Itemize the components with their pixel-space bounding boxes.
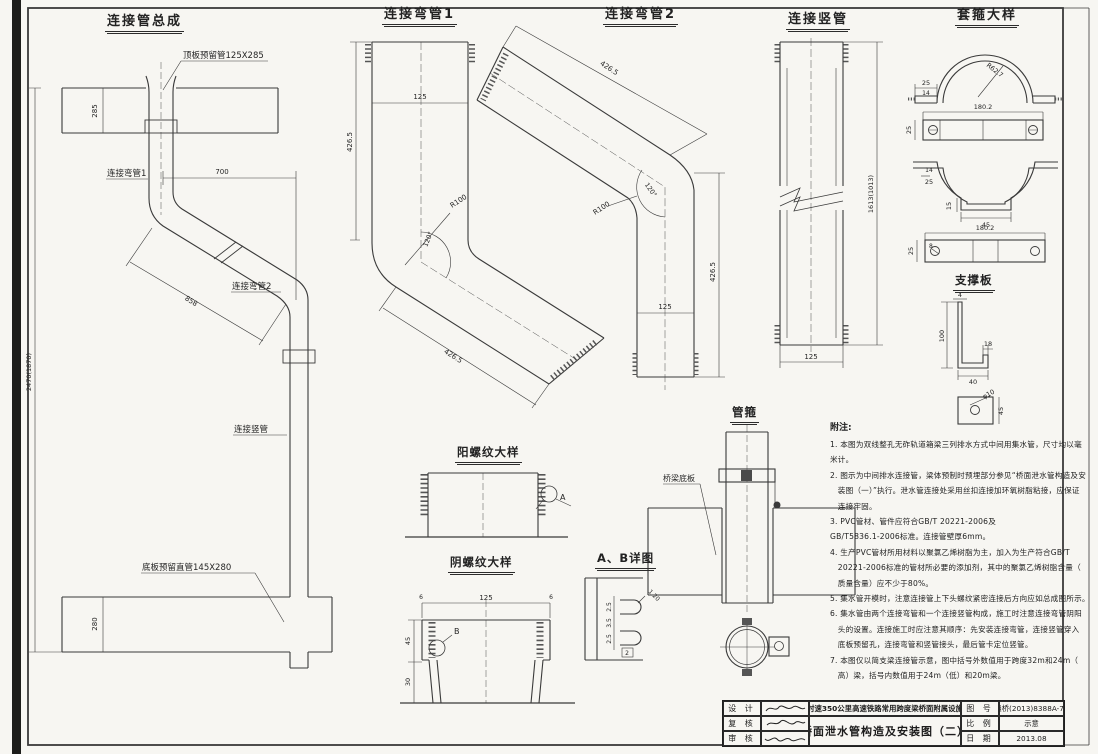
field-reviewer-label: 审 核 — [723, 731, 761, 746]
dim-s-40: 40 — [969, 378, 977, 386]
detail-ab-drawing: 2.5 3.5 2.5 2 1.20 — [585, 578, 661, 660]
female-thread-drawing: 125 6 6 45 30 B — [400, 594, 575, 703]
dim-700: 700 — [215, 168, 228, 176]
title-bend2: 连接弯管2 — [603, 3, 678, 25]
title-vpipe: 连接竖管 — [786, 8, 850, 30]
label-vpipe: 连接竖管 — [234, 424, 268, 435]
title-female-thread: 阴螺纹大样 — [448, 554, 515, 573]
dim-280: 280 — [91, 617, 99, 630]
signature-review — [761, 731, 809, 746]
note-line: 底板预留孔，连接弯管和竖管接头，最后管卡定位竖管。 — [830, 637, 1068, 652]
dim-c-25b: 25 — [905, 126, 913, 134]
dim-c-25u: 25 — [925, 178, 933, 186]
note-line: 7. 本图仅以简支梁连接管示意，图中括号外数值用于跨度32m和24m（ — [830, 653, 1068, 668]
dim-vp-125: 125 — [804, 353, 817, 361]
dim-b2-4265: 426.5 — [709, 262, 717, 282]
title-block: 设 计 时速350公里高速铁路常用跨度梁桥面附属设施 图 号 通桥(2013)8… — [722, 700, 1065, 747]
male-thread-drawing: A — [405, 473, 571, 537]
dim-b2-r100: R100 — [592, 200, 612, 217]
note-line: 连接牢固。 — [830, 499, 1068, 514]
assembly-texts: 顶板预留管125X285 285 连接弯管1 700 连接弯管2 858 247… — [25, 50, 271, 631]
dim-ab-25b: 2.5 — [606, 634, 613, 644]
assembly-drawing: 顶板预留管125X285 285 连接弯管1 700 连接弯管2 858 247… — [25, 50, 332, 668]
note-line: 质量含量）应不少于80%。 — [830, 576, 1068, 591]
notes-heading: 附注: — [830, 420, 1068, 433]
pipe-clamp-drawing: 桥梁底板 — [648, 425, 855, 676]
note-line: 高）梁，括号内数值用于24m（低）和20m梁。 — [830, 668, 1068, 683]
title-bend1: 连接弯管1 — [382, 3, 457, 25]
field-scale-label: 比 例 — [961, 716, 999, 731]
title-male-thread: 阳螺纹大样 — [455, 444, 522, 463]
field-designer-label: 设 计 — [723, 701, 761, 716]
dim-c-14a: 14 — [922, 90, 930, 97]
support-plate-drawing: 4 100 18 40 φ10 45 — [938, 291, 1005, 424]
dim-f-125: 125 — [479, 594, 492, 602]
note-line: 20221-2006标准的管材所必要的添加剂，其中的聚氯乙烯树脂含量（ — [830, 560, 1068, 575]
dim-285: 285 — [91, 104, 99, 117]
bend1-drawing: 125 426.5 120° R100 426.5 — [346, 42, 604, 408]
drawing-sheet: 顶板预留管125X285 285 连接弯管1 700 连接弯管2 858 247… — [0, 0, 1098, 754]
dim-s-45: 45 — [997, 407, 1005, 415]
note-line: 2. 图示为中间排水连接管，梁体预制时预埋部分参见“桥面泄水管构造及安 — [830, 468, 1068, 483]
dim-vp-height: 1613(1013) — [867, 175, 875, 213]
field-number-label: 图 号 — [961, 701, 999, 716]
bend1-texts: 125 426.5 120° R100 426.5 — [346, 93, 468, 365]
dim-c-25a: 25 — [922, 79, 930, 87]
note-line: 3. PVC管材、管件应符合GB/T 20221-2006及 — [830, 514, 1068, 529]
bend2-dims — [503, 26, 725, 377]
label-bottom-pipe: 底板预留直管145X280 — [142, 562, 231, 573]
dim-c-14u: 14 — [925, 167, 933, 174]
vpipe-drawing: 1613(1013) 125 — [777, 38, 883, 368]
dim-c-1802b: 180.2 — [976, 224, 995, 232]
label-top-pipe: 顶板预留管125X285 — [183, 50, 264, 61]
bend2-texts: 426.5 120° R100 426.5 125 — [592, 60, 717, 311]
label-bridge-slab: 桥梁底板 — [663, 473, 695, 483]
dim-b1-4265: 426.5 — [346, 132, 354, 152]
dim-s-100: 100 — [938, 330, 946, 342]
signature-check — [761, 716, 809, 731]
note-line: 1. 本图为双线整孔无砟轨道箱梁三列排水方式中间用集水管，尺寸均以毫 — [830, 437, 1068, 452]
dim-b1-125: 125 — [413, 93, 426, 101]
callout-a: A — [560, 493, 566, 502]
dim-c-8: 8 — [929, 243, 933, 250]
note-line: 6. 集水管由两个连接弯管和一个连接竖管构成，施工时注意连接弯管阴阳 — [830, 606, 1068, 621]
female-texts: 125 6 6 45 30 B — [404, 594, 553, 686]
signature-design — [761, 701, 809, 716]
field-checker-label: 复 核 — [723, 716, 761, 731]
dim-c-1802a: 180.2 — [974, 103, 993, 111]
dim-b1-angle: 120° — [422, 230, 435, 248]
date-value: 2013.08 — [999, 731, 1064, 746]
title-support-plate: 支撑板 — [953, 272, 995, 291]
label-bend2: 连接弯管2 — [232, 281, 271, 292]
dim-f-30: 30 — [404, 678, 412, 686]
note-line: 5. 集水管开模时，注意连接管上下头螺纹紧密连接后方向应如总成图所示。 — [830, 591, 1068, 606]
dim-ab-120: 1.20 — [647, 588, 662, 603]
title-collar: 套箍大样 — [955, 4, 1019, 26]
dim-b2-angle: 120° — [643, 181, 659, 198]
note-line: 米计。 — [830, 452, 1068, 467]
label-bend1: 连接弯管1 — [107, 168, 146, 179]
field-date-label: 日 期 — [961, 731, 999, 746]
notes-block: 附注: 1. 本图为双线整孔无砟轨道箱梁三列排水方式中间用集水管，尺寸均以毫 米… — [830, 420, 1068, 684]
drawing-number: 通桥(2013)8388A-73 — [999, 701, 1064, 716]
dim-c-25c: 25 — [907, 247, 915, 255]
dim-f-6r: 6 — [549, 594, 553, 601]
collar-texts: 25 14 R62.7 180.2 25 14 25 15 45 180.2 2… — [905, 61, 1005, 255]
dim-f-6l: 6 — [419, 594, 423, 601]
note-line: 头的设置。连接施工时应注意其顺序：先安装连接弯管，连接竖管穿入 — [830, 622, 1068, 637]
dim-b2-125: 125 — [658, 303, 671, 311]
sheet-title: 桥面泄水管构造及安装图（二） — [809, 716, 961, 746]
dim-s-18: 18 — [984, 340, 992, 348]
bend2-drawing: 426.5 120° R100 426.5 125 — [477, 26, 725, 390]
dim-ab-2: 2 — [625, 650, 629, 657]
dim-f-45: 45 — [404, 637, 412, 645]
title-detail-ab: A、B详图 — [595, 550, 656, 569]
dim-s-phi10: φ10 — [981, 388, 996, 401]
dim-ab-25a: 2.5 — [606, 602, 613, 612]
title-assembly: 连接管总成 — [105, 10, 184, 32]
dim-858: 858 — [183, 294, 199, 308]
note-line: 装图（一）”执行。泄水管连接处采用丝扣连接加环氧树脂粘接，应保证 — [830, 483, 1068, 498]
title-pipe-clamp: 管箍 — [730, 404, 759, 423]
dim-ab-35: 3.5 — [606, 618, 613, 628]
note-line: 4. 生产PVC管材所用材料以聚氯乙烯树脂为主，加入为生产符合GB/T — [830, 545, 1068, 560]
collar-detail-drawing: 25 14 R62.7 180.2 25 14 25 15 45 180.2 2… — [905, 55, 1062, 262]
project-title: 时速350公里高速铁路常用跨度梁桥面附属设施 — [809, 701, 961, 716]
dim-c-15: 15 — [945, 202, 953, 210]
dim-b1-r100: R100 — [449, 193, 469, 210]
dim-b1-diag: 426.5 — [442, 348, 463, 365]
scale-value: 示意 — [999, 716, 1064, 731]
callout-b: B — [454, 627, 460, 636]
note-line: GB/T5836.1-2006标准。连接管壁厚6mm。 — [830, 529, 1068, 544]
dim-total-height: 2470(1870) — [25, 353, 33, 391]
